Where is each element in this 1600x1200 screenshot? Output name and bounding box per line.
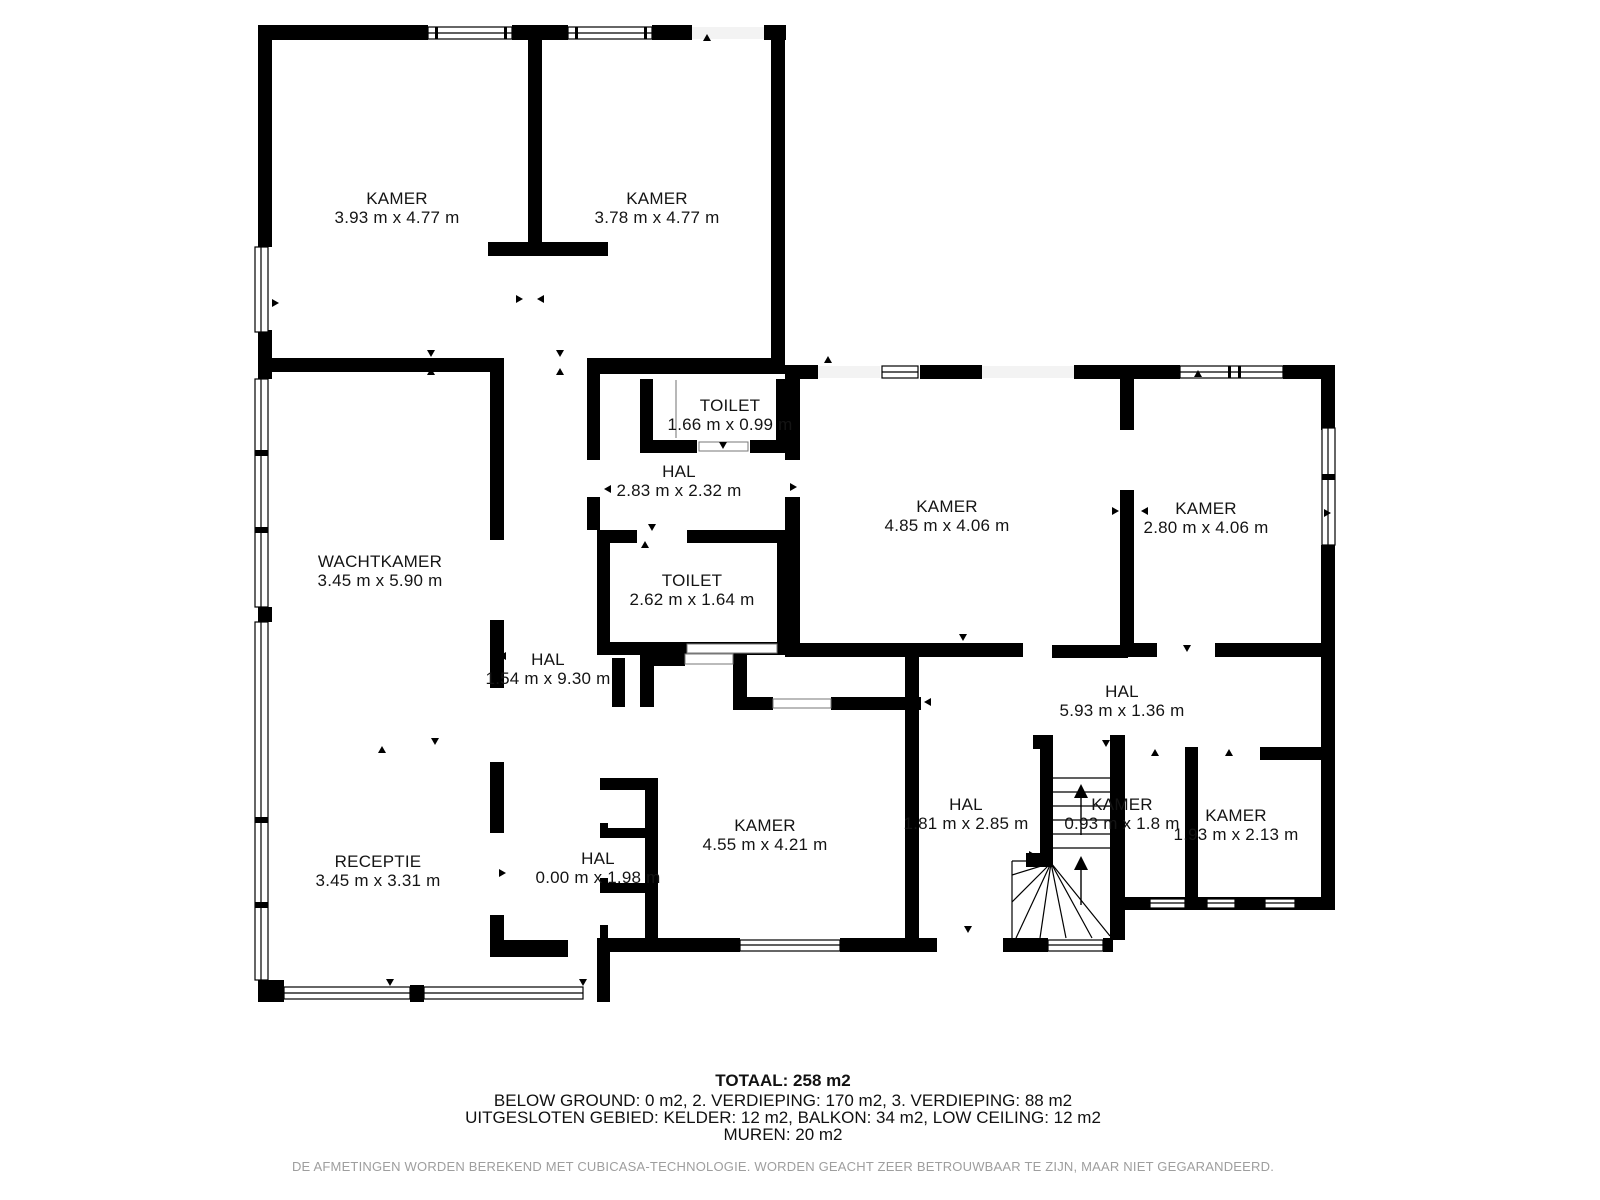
openings-layer — [692, 27, 1074, 378]
floorplan-drawing — [0, 0, 1600, 1200]
floorplan-page: { "plan": { "rooms": [ {"name":"KAMER","… — [0, 0, 1600, 1200]
walls-layer — [258, 25, 1335, 1002]
disclaimer-text: DE AFMETINGEN WORDEN BEREKEND MET CUBICA… — [0, 1159, 1566, 1174]
total-area-text: TOTAAL: 258 m2 — [0, 1071, 1566, 1091]
walls-area-text: MUREN: 20 m2 — [0, 1125, 1566, 1145]
door-markers — [272, 34, 1331, 986]
